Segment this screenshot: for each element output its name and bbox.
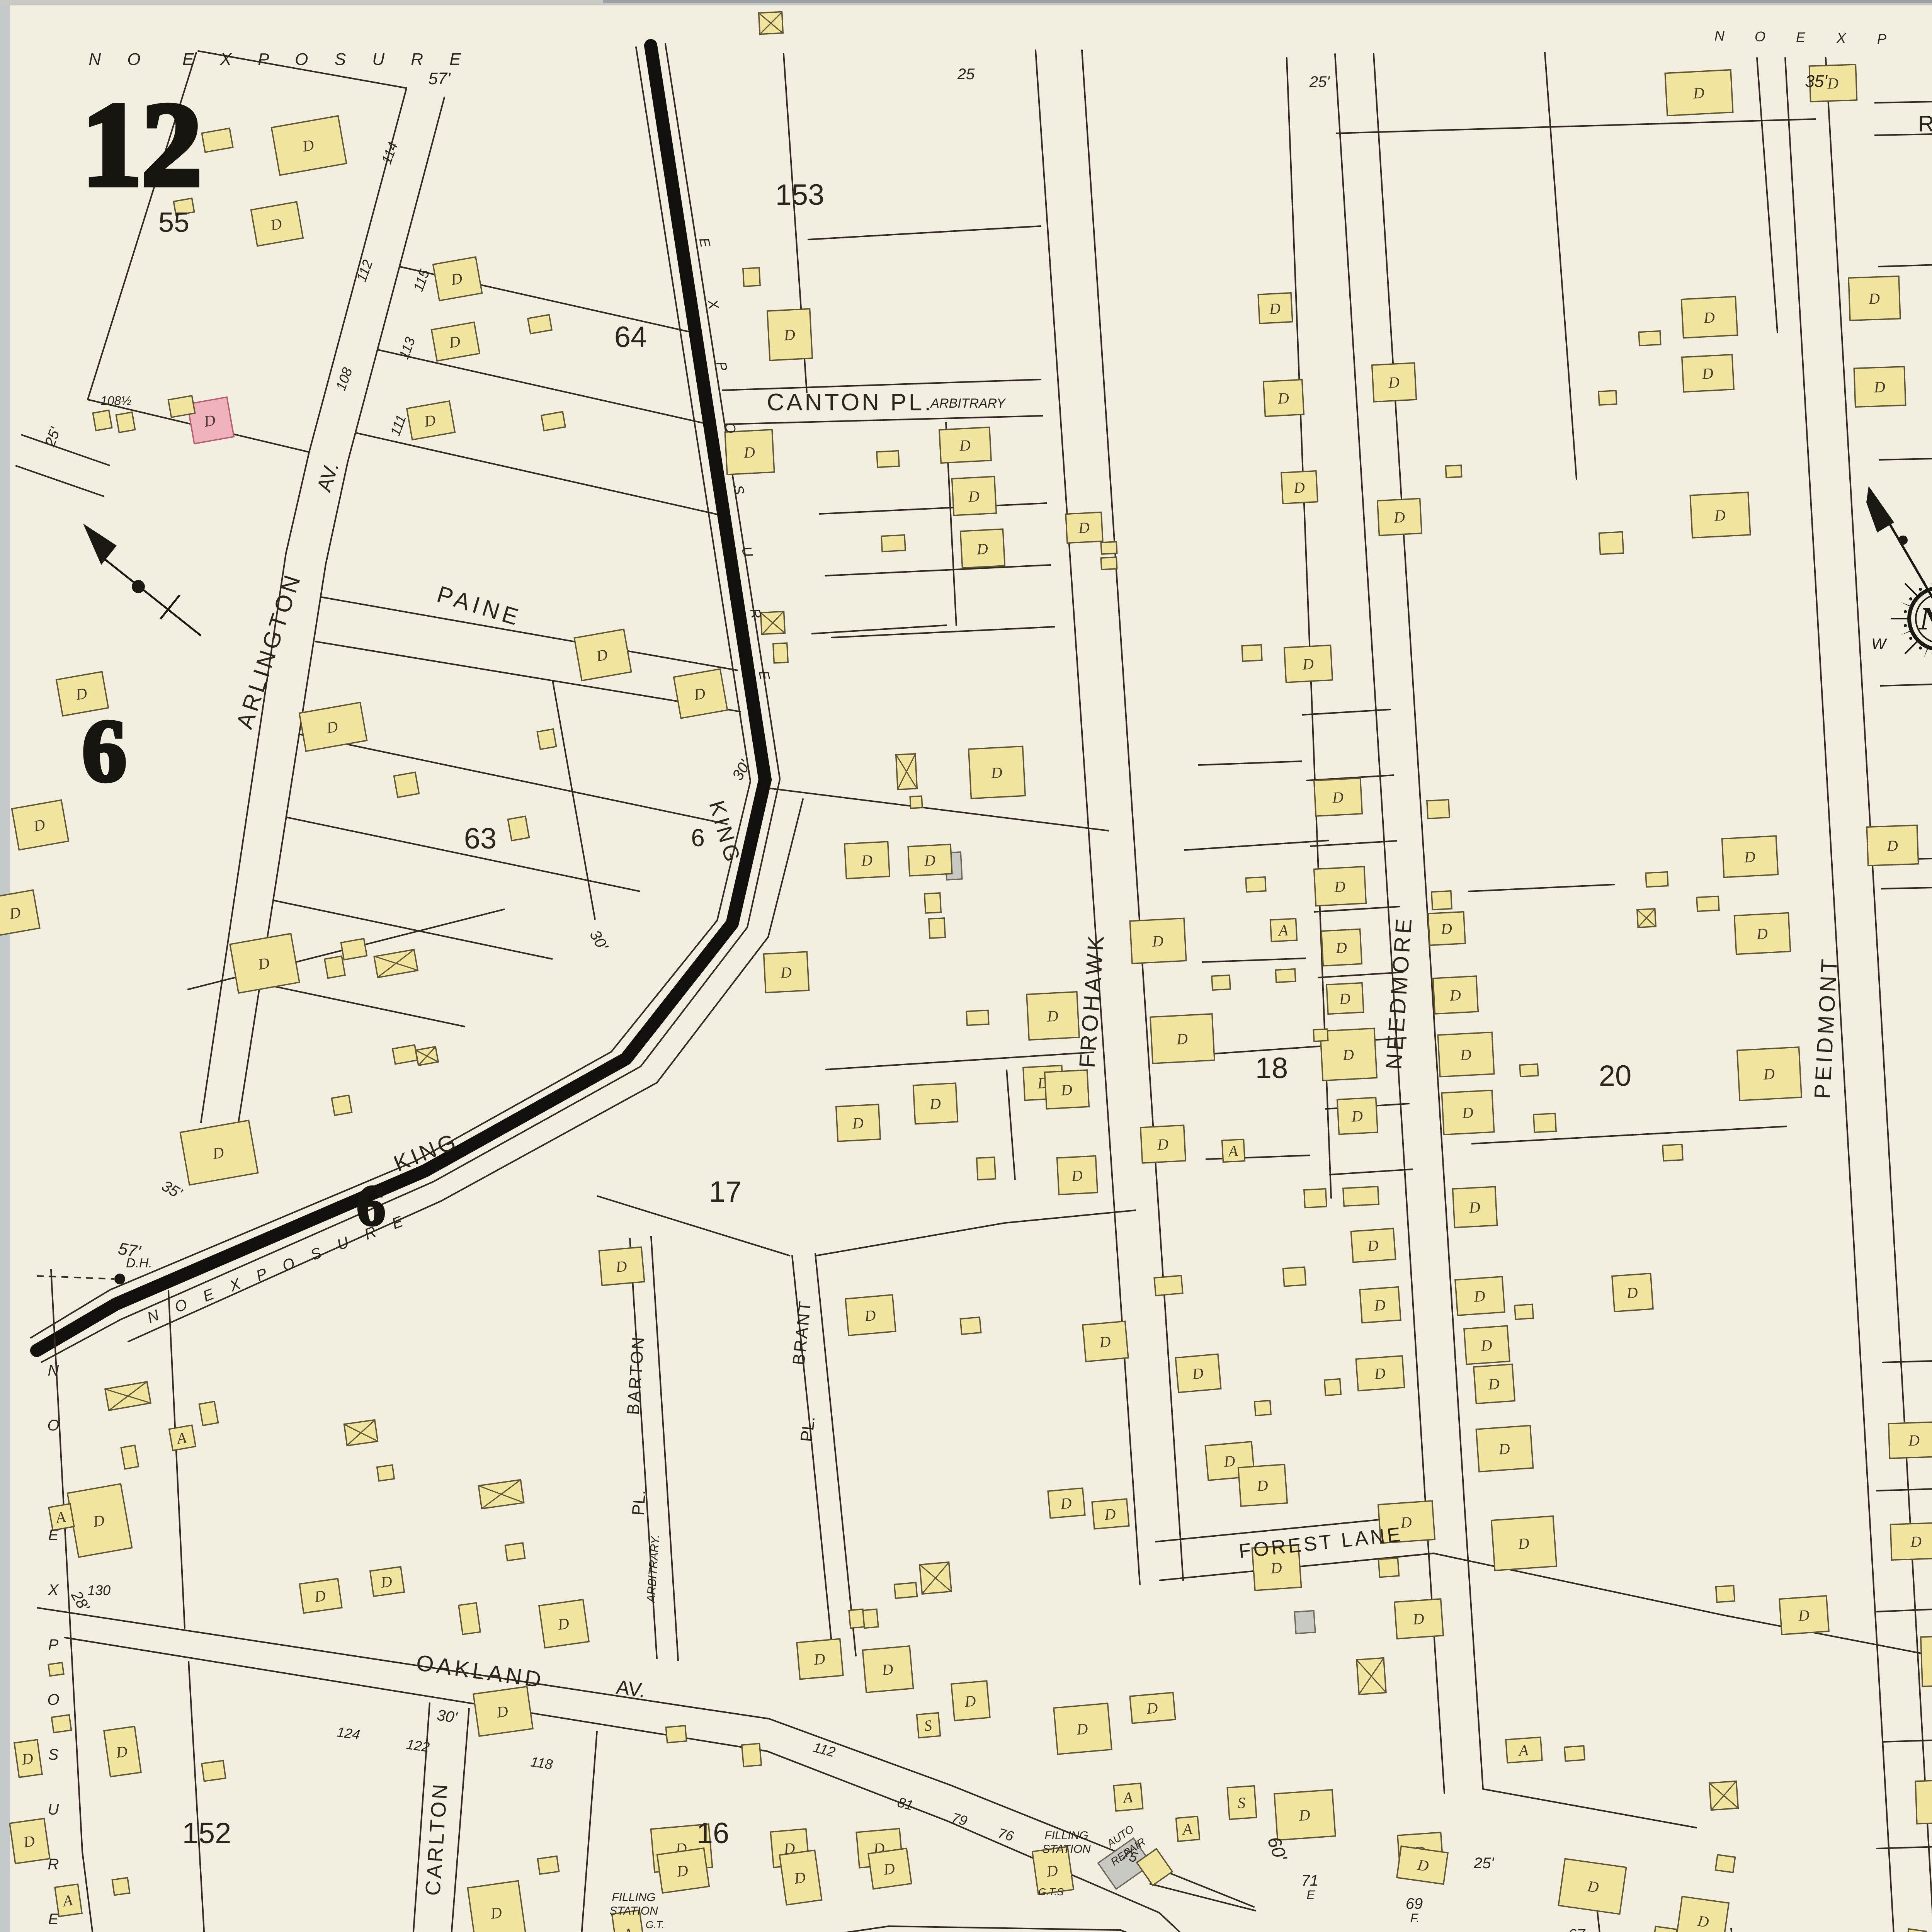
svg-text:S: S [1237, 1794, 1246, 1811]
svg-text:D: D [1703, 308, 1715, 327]
svg-text:A: A [1227, 1142, 1238, 1160]
svg-text:D: D [861, 851, 873, 869]
svg-text:P: P [1877, 31, 1886, 47]
svg-text:D: D [968, 487, 980, 505]
svg-text:D: D [1487, 1375, 1500, 1393]
svg-text:D: D [1412, 1610, 1425, 1628]
svg-text:25: 25 [957, 66, 975, 83]
svg-text:D: D [1046, 1007, 1059, 1025]
svg-text:U: U [48, 1801, 60, 1818]
svg-text:D: D [881, 1660, 894, 1679]
svg-text:D: D [1333, 878, 1346, 896]
svg-text:D: D [1517, 1534, 1530, 1553]
svg-text:D: D [990, 764, 1003, 782]
svg-text:D: D [1696, 1912, 1710, 1931]
svg-text:W: W [1871, 636, 1887, 653]
svg-text:D: D [1416, 1856, 1430, 1875]
svg-text:N: N [1714, 28, 1725, 44]
svg-text:D: D [1298, 1806, 1311, 1824]
svg-text:D: D [1059, 1494, 1072, 1512]
svg-text:D: D [1827, 75, 1839, 92]
svg-text:D: D [1078, 519, 1090, 537]
svg-text:D: D [1269, 299, 1281, 318]
svg-text:STATION: STATION [1042, 1843, 1091, 1855]
svg-text:D: D [1468, 1198, 1481, 1216]
svg-text:D: D [556, 1614, 570, 1633]
svg-text:D: D [813, 1650, 826, 1668]
svg-text:ROSA: ROSA [1918, 111, 1932, 136]
svg-text:FILLING: FILLING [1044, 1829, 1088, 1842]
svg-text:D: D [1071, 1167, 1083, 1185]
svg-text:D: D [1763, 1065, 1775, 1083]
svg-text:25': 25' [1309, 73, 1330, 90]
svg-text:130: 130 [87, 1582, 111, 1598]
svg-text:D: D [20, 1749, 34, 1768]
svg-text:D: D [1868, 290, 1880, 308]
svg-text:D: D [882, 1859, 896, 1878]
svg-text:D: D [1366, 1236, 1379, 1255]
svg-text:D: D [1256, 1476, 1269, 1495]
svg-text:30': 30' [436, 1707, 459, 1726]
svg-text:O: O [1755, 29, 1765, 44]
svg-text:D: D [1440, 920, 1452, 938]
svg-text:S: S [48, 1746, 59, 1763]
svg-text:D: D [976, 540, 988, 558]
svg-text:D: D [1151, 932, 1164, 950]
svg-text:D: D [1692, 84, 1705, 102]
svg-text:D: D [1060, 1081, 1073, 1099]
svg-text:12: 12 [82, 78, 202, 211]
svg-text:P: P [48, 1636, 59, 1653]
svg-text:D: D [1586, 1877, 1600, 1896]
svg-text:O: O [47, 1417, 59, 1434]
svg-text:18: 18 [1255, 1052, 1288, 1085]
svg-text:CANTON PL.: CANTON PL. [767, 389, 934, 416]
svg-text:69: 69 [1406, 1895, 1423, 1912]
svg-text:D: D [1176, 1030, 1188, 1048]
svg-text:152: 152 [182, 1817, 231, 1850]
svg-text:D: D [959, 436, 971, 454]
svg-text:D: D [1743, 848, 1756, 866]
svg-text:D: D [1797, 1606, 1810, 1624]
svg-text:63: 63 [464, 822, 497, 855]
svg-text:124: 124 [336, 1724, 361, 1743]
svg-text:O: O [47, 1691, 59, 1708]
svg-text:D: D [1277, 389, 1289, 407]
svg-text:E: E [48, 1911, 59, 1928]
svg-text:D: D [1449, 986, 1461, 1004]
svg-text:D: D [1293, 478, 1305, 497]
svg-text:57': 57' [428, 69, 451, 88]
svg-text:D: D [614, 1257, 628, 1276]
svg-text:64: 64 [614, 321, 647, 354]
svg-text:D: D [1098, 1333, 1111, 1351]
svg-text:D: D [1223, 1452, 1236, 1470]
svg-text:D: D [1498, 1440, 1510, 1458]
svg-text:108½: 108½ [100, 394, 131, 408]
svg-text:D: D [675, 1861, 689, 1880]
svg-text:D: D [1910, 1533, 1922, 1551]
svg-text:D: D [863, 1306, 876, 1325]
svg-text:D.H.: D.H. [126, 1256, 152, 1270]
svg-text:D: D [1302, 655, 1314, 673]
svg-text:D: D [852, 1114, 864, 1132]
svg-text:X: X [48, 1582, 59, 1599]
svg-text:R: R [48, 1856, 59, 1873]
svg-text:55: 55 [158, 207, 189, 238]
svg-text:17: 17 [709, 1175, 742, 1208]
svg-text:S: S [923, 1716, 933, 1735]
svg-text:71: 71 [1301, 1872, 1319, 1889]
svg-text:D: D [379, 1572, 393, 1591]
svg-text:PL.: PL. [797, 1415, 819, 1443]
svg-text:G.T.: G.T. [646, 1919, 664, 1930]
svg-text:E: E [1306, 1888, 1315, 1902]
svg-text:D: D [1332, 788, 1344, 806]
svg-text:NS: NS [1919, 601, 1932, 637]
svg-text:122: 122 [405, 1736, 430, 1755]
svg-text:6: 6 [691, 824, 705, 852]
svg-text:20: 20 [1599, 1060, 1632, 1092]
svg-text:67: 67 [1568, 1926, 1586, 1932]
svg-text:D: D [1156, 1135, 1169, 1153]
svg-text:D: D [1335, 939, 1347, 957]
svg-text:25': 25' [1473, 1855, 1494, 1872]
svg-text:D: D [115, 1742, 129, 1761]
svg-text:F.: F. [1410, 1911, 1420, 1925]
svg-text:D: D [1873, 378, 1886, 396]
svg-text:D: D [1886, 837, 1898, 855]
svg-text:N O E X P O S U R E: N O E X P O S U R E [88, 50, 471, 69]
svg-text:6: 6 [82, 701, 127, 800]
svg-text:D: D [1373, 1296, 1386, 1314]
svg-text:D: D [780, 963, 792, 981]
svg-text:D: D [1045, 1861, 1059, 1880]
svg-text:D: D [1714, 506, 1726, 524]
svg-text:E: E [1796, 29, 1806, 45]
svg-text:D: D [1701, 364, 1714, 383]
svg-text:D: D [1191, 1364, 1204, 1383]
svg-text:D: D [1373, 1364, 1386, 1383]
svg-text:D: D [783, 326, 796, 344]
svg-text:ARBITRARY: ARBITRARY [930, 396, 1006, 411]
svg-text:D: D [1908, 1432, 1920, 1449]
svg-text:D: D [1103, 1505, 1116, 1523]
svg-text:STATION: STATION [609, 1905, 658, 1917]
svg-text:E: E [48, 1527, 59, 1544]
svg-text:D: D [313, 1587, 327, 1605]
svg-text:118: 118 [529, 1753, 554, 1772]
svg-text:FILLING: FILLING [612, 1891, 655, 1904]
svg-text:PL.: PL. [629, 1489, 649, 1516]
svg-text:D: D [1480, 1336, 1493, 1354]
svg-text:16: 16 [697, 1817, 730, 1850]
svg-text:AV.: AV. [615, 1676, 647, 1702]
svg-text:D: D [743, 443, 755, 461]
svg-text:D: D [1388, 373, 1400, 391]
svg-text:D: D [1473, 1287, 1486, 1305]
svg-text:D: D [923, 851, 936, 869]
svg-text:G.T.S: G.T.S [1038, 1886, 1064, 1898]
svg-text:N: N [48, 1362, 59, 1379]
svg-text:D: D [22, 1832, 36, 1851]
svg-text:A: A [1277, 921, 1289, 939]
svg-text:D: D [1145, 1699, 1158, 1717]
svg-text:D: D [1338, 990, 1351, 1008]
svg-text:D: D [1342, 1046, 1354, 1064]
svg-text:X: X [1836, 30, 1847, 46]
svg-text:35': 35' [1805, 72, 1828, 91]
svg-text:D: D [1270, 1559, 1282, 1577]
svg-text:153: 153 [776, 179, 825, 211]
svg-text:D: D [793, 1868, 807, 1887]
svg-text:D: D [1075, 1720, 1088, 1738]
svg-text:D: D [495, 1702, 509, 1721]
svg-text:D: D [1626, 1284, 1638, 1302]
svg-text:D: D [1393, 508, 1405, 526]
svg-text:D: D [1756, 925, 1768, 943]
svg-text:D: D [1461, 1104, 1474, 1122]
svg-text:D: D [929, 1095, 941, 1113]
svg-text:D: D [1459, 1046, 1472, 1064]
svg-text:D: D [489, 1903, 503, 1922]
svg-text:D: D [963, 1692, 976, 1710]
svg-text:D: D [1351, 1107, 1363, 1125]
